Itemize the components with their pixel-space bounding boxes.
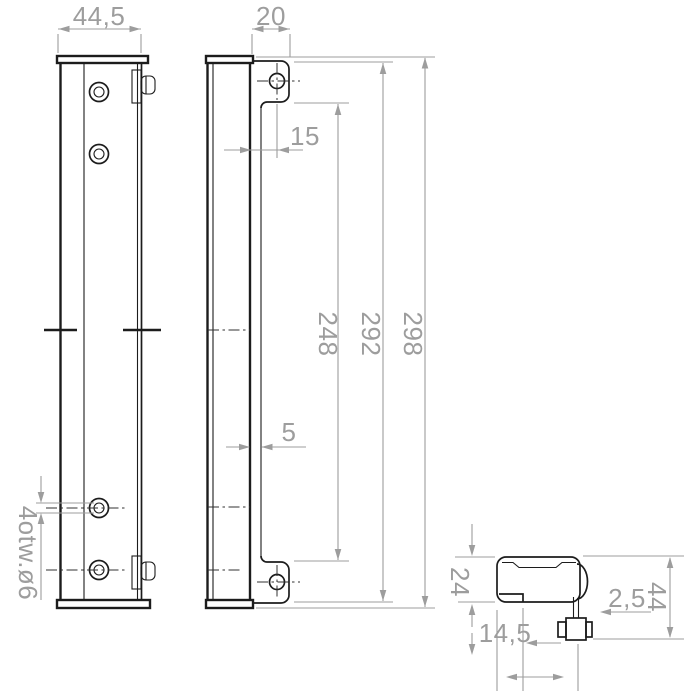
top-ear-hole xyxy=(257,63,300,100)
technical-drawing: 44,5 4otw.ø6 20 15 xyxy=(0,0,700,700)
side-view xyxy=(206,56,300,608)
dim-hole-inset: 15 xyxy=(224,104,320,158)
dim-inner-span: 248 xyxy=(294,103,349,561)
dim-plate-gap: 5 xyxy=(226,417,306,450)
side-top-flange xyxy=(206,56,253,63)
dim-overall-width: 44,5 xyxy=(58,1,141,53)
dim-label-bolt-offset: 2,5 xyxy=(608,583,646,613)
dim-label-section-depth: 44 xyxy=(642,582,672,612)
bolt-nut xyxy=(558,618,592,640)
hook-bolt-top xyxy=(132,70,155,103)
hook-bolt-bottom xyxy=(132,556,155,589)
hole-top-1 xyxy=(90,83,109,102)
side-centerlines xyxy=(208,330,250,570)
dim-label-inner-span: 248 xyxy=(313,312,343,357)
channel-profile xyxy=(497,557,580,602)
dimension-layer: 44,5 4otw.ø6 20 15 xyxy=(13,1,684,691)
dim-holes-note: 4otw.ø6 xyxy=(13,476,94,600)
side-bottom-flange xyxy=(206,600,253,608)
hole-top-2 xyxy=(90,145,109,164)
dim-overall-height: 298 xyxy=(256,57,435,608)
bottom-ear-hole xyxy=(257,565,300,600)
drawing-canvas: 44,5 4otw.ø6 20 15 xyxy=(0,0,700,700)
front-bottom-flange xyxy=(57,600,150,608)
front-view xyxy=(44,56,161,608)
dim-lip-width: 14,5 xyxy=(479,608,564,691)
dim-label-section-height: 24 xyxy=(445,567,475,597)
channel-seam xyxy=(502,563,576,568)
dim-label-ear-width: 20 xyxy=(256,1,286,31)
dim-ear-width: 20 xyxy=(252,1,290,57)
dim-label-overall-width: 44,5 xyxy=(73,1,126,31)
dim-label-hole-inset: 15 xyxy=(290,121,320,151)
dim-label-lip-width: 14,5 xyxy=(479,618,532,648)
front-top-flange xyxy=(57,56,148,63)
dim-label-ear-span: 292 xyxy=(356,312,386,357)
bolt-hook xyxy=(577,564,588,599)
dim-label-holes-note: 4otw.ø6 xyxy=(13,506,43,601)
hole-bottom-1 xyxy=(46,499,128,518)
hole-bottom-2 xyxy=(46,561,128,580)
dim-label-plate-gap: 5 xyxy=(282,417,297,447)
dim-label-overall-height: 298 xyxy=(398,312,428,357)
